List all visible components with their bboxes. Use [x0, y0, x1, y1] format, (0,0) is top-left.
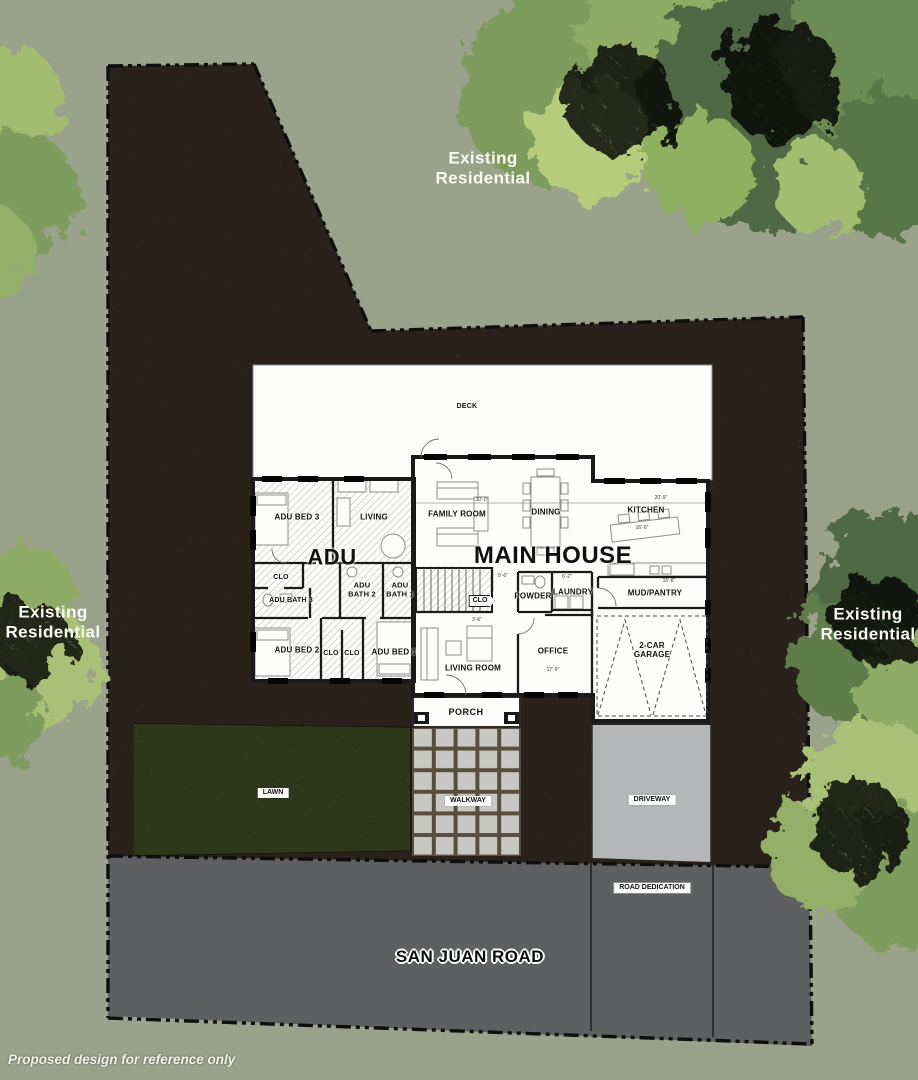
main-house-title: MAIN HOUSE: [474, 542, 632, 570]
adu-closet2-label: CLO: [323, 650, 338, 658]
dimension-label: 20'-9": [655, 495, 668, 501]
existing-residential-top-label: Existing Residential: [418, 148, 548, 187]
dimension-label: 17'-9": [547, 667, 560, 673]
adu-bed3-label: ADU BED 3: [275, 512, 320, 521]
adu-bath3-label: ADU BATH 3: [269, 597, 313, 605]
adu-bed2-label: ADU BED 2: [275, 645, 320, 654]
disclaimer-text: Proposed design for reference only: [8, 1052, 235, 1068]
site-plan: Existing Residential Existing Residentia…: [0, 0, 918, 1080]
dimension-label: 5'-6": [498, 573, 508, 579]
adu-closet-label: CLO: [273, 574, 288, 582]
dimension-label: 16'-0": [636, 525, 649, 531]
dimension-label: 3'-6": [472, 617, 482, 623]
adu-bath1-label: ADU BATH 1: [382, 581, 418, 598]
porch-label: PORCH: [448, 707, 483, 717]
lawn-label: LAWN: [258, 788, 289, 798]
adu-bed1-label: ADU BED 1: [372, 647, 417, 656]
adu-bath2-label: ADU BATH 2: [344, 581, 380, 598]
road-dedication-label: ROAD DEDICATION: [613, 882, 691, 894]
deck-label: DECK: [457, 403, 478, 411]
road-name-label: SAN JUAN ROAD: [396, 947, 544, 967]
adu-title: ADU: [307, 544, 356, 569]
dining-label: DINING: [531, 507, 560, 516]
driveway-label: DRIVEWAY: [629, 795, 676, 805]
adu-living-label: LIVING: [360, 512, 388, 521]
laundry-label: LAUNDRY: [553, 587, 593, 596]
office-label: OFFICE: [538, 646, 569, 655]
main-closet-label: CLO: [469, 595, 496, 607]
labels-layer: Existing Residential Existing Residentia…: [0, 0, 918, 1080]
dimension-label: 6'-2": [562, 574, 572, 580]
dimension-label: 15'-8": [663, 578, 676, 584]
garage-label: 2-CAR GARAGE: [626, 641, 678, 659]
family-room-label: FAMILY ROOM: [428, 509, 486, 518]
dimension-label: 30'-0": [476, 497, 489, 503]
powder-label: POWDER: [514, 591, 551, 600]
kitchen-label: KITCHEN: [628, 505, 665, 514]
adu-closet3-label: CLO: [344, 650, 359, 658]
living-room-label: LIVING ROOM: [445, 663, 501, 672]
walkway-label: WALKWAY: [445, 796, 491, 806]
existing-residential-left-label: Existing Residential: [0, 602, 118, 641]
mud-pantry-label: MUD/PANTRY: [628, 588, 682, 597]
existing-residential-right-label: Existing Residential: [803, 604, 918, 643]
